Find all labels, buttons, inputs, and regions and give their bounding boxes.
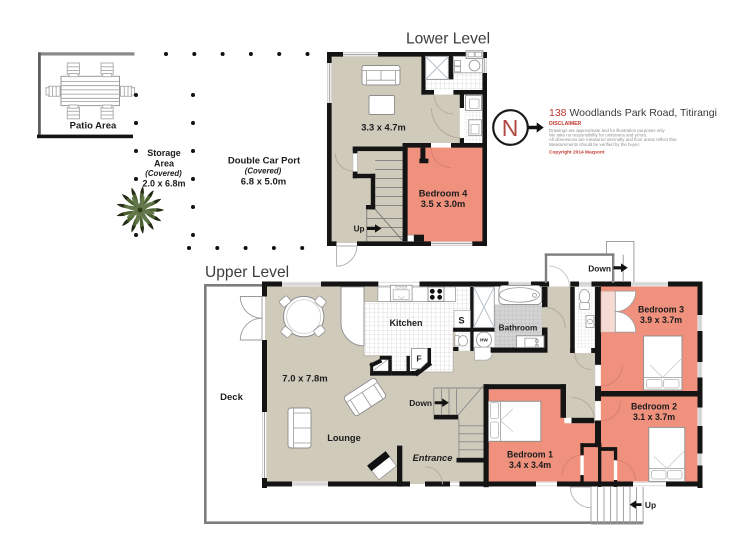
svg-text:F: F	[416, 354, 421, 364]
svg-text:Lounge: Lounge	[327, 433, 361, 443]
svg-text:3.5 x 3.0m: 3.5 x 3.0m	[421, 199, 465, 209]
svg-text:Down: Down	[588, 263, 611, 273]
svg-text:Area: Area	[154, 159, 175, 169]
svg-text:S: S	[458, 316, 464, 326]
svg-text:Bedroom 4: Bedroom 4	[419, 189, 468, 199]
svg-text:Copyright 2014 Mazpont: Copyright 2014 Mazpont	[549, 150, 605, 156]
svg-text:Deck: Deck	[220, 392, 243, 403]
svg-text:Bedroom 2: Bedroom 2	[631, 402, 677, 412]
svg-text:3.9 x 3.7m: 3.9 x 3.7m	[640, 315, 682, 325]
svg-text:HW: HW	[480, 338, 488, 343]
svg-text:(Covered): (Covered)	[245, 167, 282, 176]
svg-text:7.0 x 7.8m: 7.0 x 7.8m	[282, 374, 327, 385]
svg-text:Up: Up	[645, 500, 656, 510]
svg-text:138 Woodlands Park Road, Titir: 138 Woodlands Park Road, Titirangi	[549, 107, 717, 119]
svg-text:Down: Down	[409, 398, 432, 408]
svg-text:Up: Up	[354, 225, 365, 234]
svg-text:Bedroom 3: Bedroom 3	[638, 305, 684, 315]
svg-text:Measurements should be verifie: Measurements should be verified by the b…	[549, 142, 640, 147]
svg-text:Bedroom 1: Bedroom 1	[507, 450, 553, 460]
svg-text:Patio Area: Patio Area	[70, 121, 117, 132]
svg-text:Entrance: Entrance	[413, 453, 453, 463]
svg-text:Double Car Port: Double Car Port	[228, 156, 301, 167]
svg-text:Upper Level: Upper Level	[205, 264, 289, 281]
svg-text:DISCLAIMER: DISCLAIMER	[549, 121, 582, 127]
svg-text:3.1 x 3.7m: 3.1 x 3.7m	[633, 412, 675, 422]
svg-text:Lower Level: Lower Level	[406, 31, 490, 48]
svg-text:Storage: Storage	[147, 148, 181, 158]
svg-text:Bathroom: Bathroom	[499, 323, 538, 332]
svg-text:Kitchen: Kitchen	[389, 318, 422, 328]
svg-text:(Covered): (Covered)	[145, 169, 182, 178]
svg-text:2.0 x 6.8m: 2.0 x 6.8m	[142, 179, 185, 189]
svg-text:3.3 x 4.7m: 3.3 x 4.7m	[361, 123, 405, 133]
svg-text:N: N	[502, 115, 519, 141]
svg-text:6.8 x 5.0m: 6.8 x 5.0m	[241, 177, 286, 188]
svg-text:3.4 x 3.4m: 3.4 x 3.4m	[509, 460, 551, 470]
